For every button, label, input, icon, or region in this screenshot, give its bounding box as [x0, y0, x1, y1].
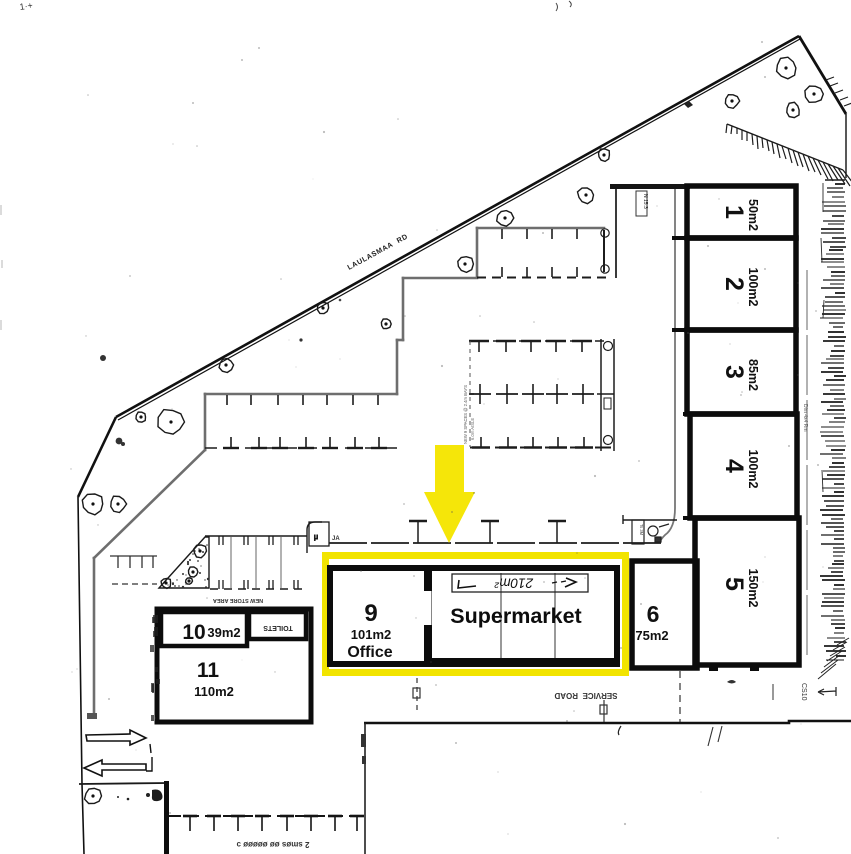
svg-text:JA: JA	[332, 536, 340, 542]
svg-text:75m2: 75m2	[635, 628, 668, 643]
svg-text:39m2: 39m2	[207, 625, 240, 640]
svg-text:1: 1	[720, 205, 748, 219]
svg-text:Ts 3M: Ts 3M	[639, 524, 644, 536]
svg-text:4: 4	[720, 459, 748, 473]
svg-text:Supermarket: Supermarket	[450, 604, 581, 628]
svg-text:μ: μ	[314, 534, 318, 541]
svg-text:85m2: 85m2	[746, 359, 760, 391]
svg-text:CS10: CS10	[800, 683, 807, 701]
svg-text:Office: Office	[347, 644, 392, 661]
svg-text:TOILETS: TOILETS	[263, 624, 293, 631]
svg-text:3: 3	[720, 365, 748, 379]
svg-text:6.0m AISLE: 6.0m AISLE	[470, 418, 475, 440]
svg-text:NEW 9 SPACES @ 2.4m BAYS: NEW 9 SPACES @ 2.4m BAYS	[463, 385, 468, 444]
svg-text:2: 2	[720, 277, 748, 291]
svg-text:50m2: 50m2	[746, 199, 760, 231]
svg-text:11: 11	[197, 659, 220, 682]
svg-text:150m2: 150m2	[746, 569, 760, 608]
svg-text:NEW STORE AREA: NEW STORE AREA	[213, 597, 263, 603]
svg-text:9: 9	[364, 600, 377, 627]
svg-text:1·+: 1·+	[19, 0, 34, 12]
svg-text:100m2: 100m2	[746, 450, 760, 489]
svg-text:10: 10	[182, 621, 205, 644]
svg-text:SERVICE ROAD: SERVICE ROAD	[554, 691, 617, 700]
svg-text:100m2: 100m2	[746, 268, 760, 307]
svg-text:6: 6	[647, 601, 660, 627]
svg-text:210m²: 210m²	[494, 576, 534, 591]
svg-text:Dim 4x4 Rm: Dim 4x4 Rm	[802, 404, 808, 432]
svg-text:N 15.3: N 15.3	[642, 194, 648, 209]
svg-text:110m2: 110m2	[194, 684, 234, 699]
svg-text:5: 5	[720, 577, 748, 591]
svg-text:2 smøs øø øøøøø ɔ: 2 smøs øø øøøøø ɔ	[236, 840, 309, 849]
svg-text:101m2: 101m2	[351, 627, 391, 642]
